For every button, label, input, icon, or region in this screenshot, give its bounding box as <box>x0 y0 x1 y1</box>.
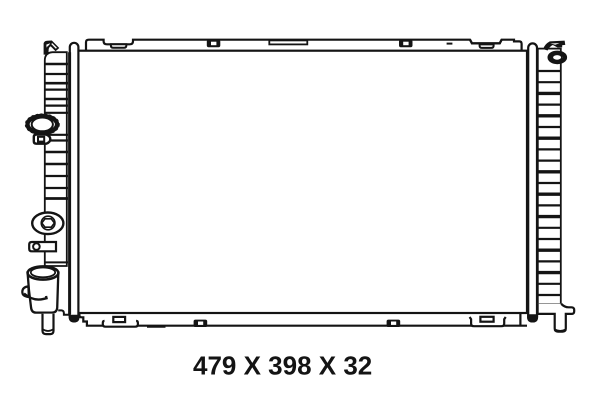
svg-text:479 X 398 X 32: 479 X 398 X 32 <box>193 351 372 381</box>
